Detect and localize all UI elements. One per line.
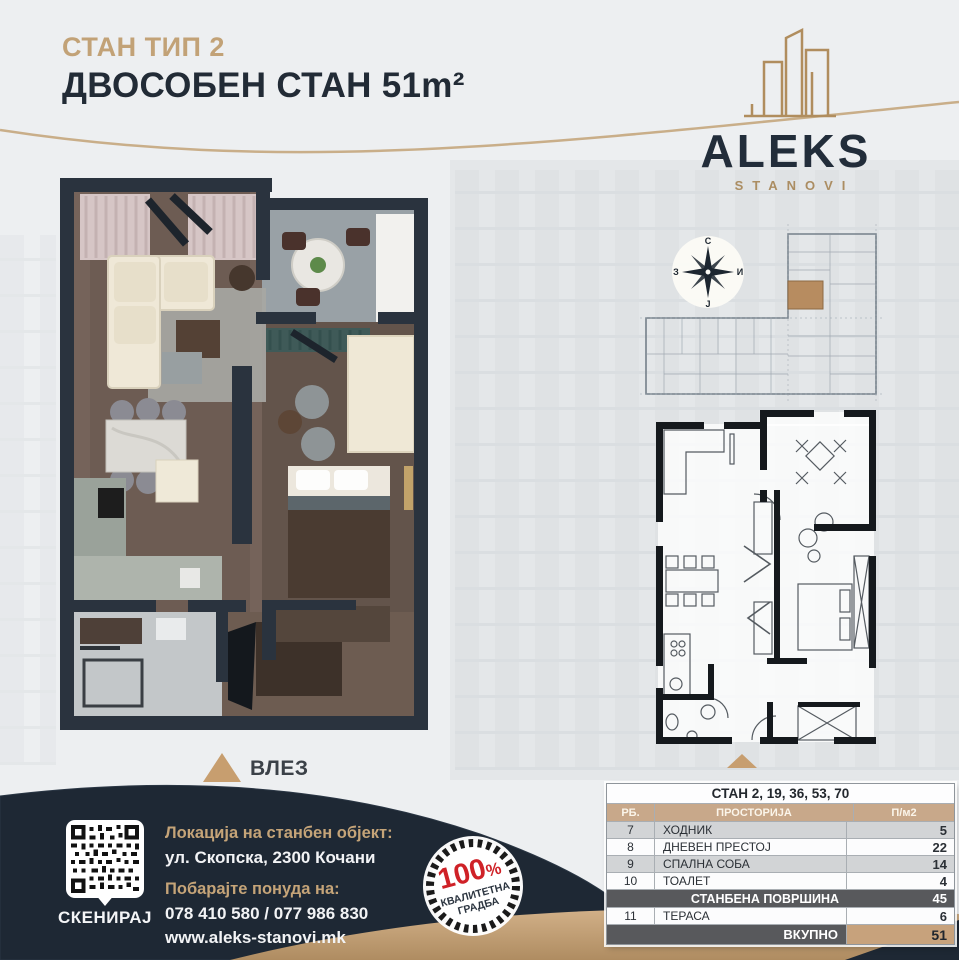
floorplan-3d	[60, 170, 440, 748]
col-area-header: П/м2	[854, 807, 954, 819]
entrance-triangle	[203, 753, 241, 782]
location-label: Локација на станбен објект:	[165, 824, 393, 843]
qr-pointer	[95, 894, 115, 906]
flat-type-subtitle: СТАН ТИП 2	[62, 32, 225, 63]
building-level-plan	[640, 224, 885, 404]
subtotal-label: СТАНБЕНА ПОВРШИНА	[607, 892, 847, 906]
row-num: 8	[607, 839, 655, 855]
col-room-header: ПРОСТОРИЈА	[655, 804, 854, 821]
row-num: 7	[607, 822, 655, 838]
row-area: 22	[847, 840, 954, 855]
scan-label: СКЕНИРАЈ	[46, 908, 164, 928]
row-room: ХОДНИК	[655, 822, 847, 838]
row-area: 14	[847, 857, 954, 872]
table-row: 7 ХОДНИК 5	[607, 821, 954, 838]
table-title: СТАН 2, 19, 36, 53, 70	[607, 784, 954, 803]
row-room: ДНЕВЕН ПРЕСТОЈ	[655, 839, 847, 855]
row-num: 11	[607, 908, 655, 924]
phone-numbers: 078 410 580 / 077 986 830	[165, 904, 368, 924]
entrance-triangle-2d	[727, 754, 757, 768]
total-row: ВКУПНО 51	[607, 924, 954, 944]
row-room: ТОАЛЕТ	[655, 873, 847, 889]
subtotal-row: СТАНБЕНА ПОВРШИНА 45	[607, 889, 954, 907]
floorplan-2d	[648, 406, 888, 762]
area-table: СТАН 2, 19, 36, 53, 70 РБ. ПРОСТОРИЈА П/…	[606, 783, 955, 945]
entrance-label: ВЛЕЗ	[250, 757, 309, 781]
background-building-left	[0, 235, 56, 765]
row-area: 5	[847, 823, 954, 838]
logo-tagline: STANOVI	[692, 178, 888, 193]
subtotal-area: 45	[847, 891, 954, 906]
page-title: ДВОСОБЕН СТАН 51m²	[62, 66, 465, 106]
offer-label: Побарајте понуда на:	[165, 880, 340, 899]
website-link[interactable]: www.aleks-stanovi.mk	[165, 928, 346, 948]
table-row: 9 СПАЛНА СОБА 14	[607, 855, 954, 872]
row-num: 10	[607, 873, 655, 889]
qr-code[interactable]	[66, 820, 144, 898]
address-text: ул. Скопска, 2300 Кочани	[165, 848, 375, 868]
table-row: 11 ТЕРАСА 6	[607, 907, 954, 924]
table-row: 8 ДНЕВЕН ПРЕСТОЈ 22	[607, 838, 954, 855]
total-label: ВКУПНО	[607, 927, 846, 942]
row-area: 6	[847, 909, 954, 924]
logo-wordmark: ALEKS	[688, 124, 884, 178]
flyer-page: СТАН ТИП 2 ДВОСОБЕН СТАН 51m² ALEKS STAN…	[0, 0, 959, 960]
table-row: 10 ТОАЛЕТ 4	[607, 872, 954, 889]
row-num: 9	[607, 856, 655, 872]
quality-badge: 100% КВАЛИТЕТНА ГРАДБА	[421, 834, 525, 938]
qr-pattern	[71, 825, 139, 893]
total-area: 51	[846, 925, 954, 944]
logo-building-icon	[738, 24, 842, 122]
row-room: СПАЛНА СОБА	[655, 856, 847, 872]
highlighted-unit	[788, 281, 823, 309]
col-num-header: РБ.	[607, 804, 655, 821]
row-area: 4	[847, 874, 954, 889]
table-header-row: РБ. ПРОСТОРИЈА П/м2	[607, 803, 954, 821]
row-room: ТЕРАСА	[655, 908, 847, 924]
